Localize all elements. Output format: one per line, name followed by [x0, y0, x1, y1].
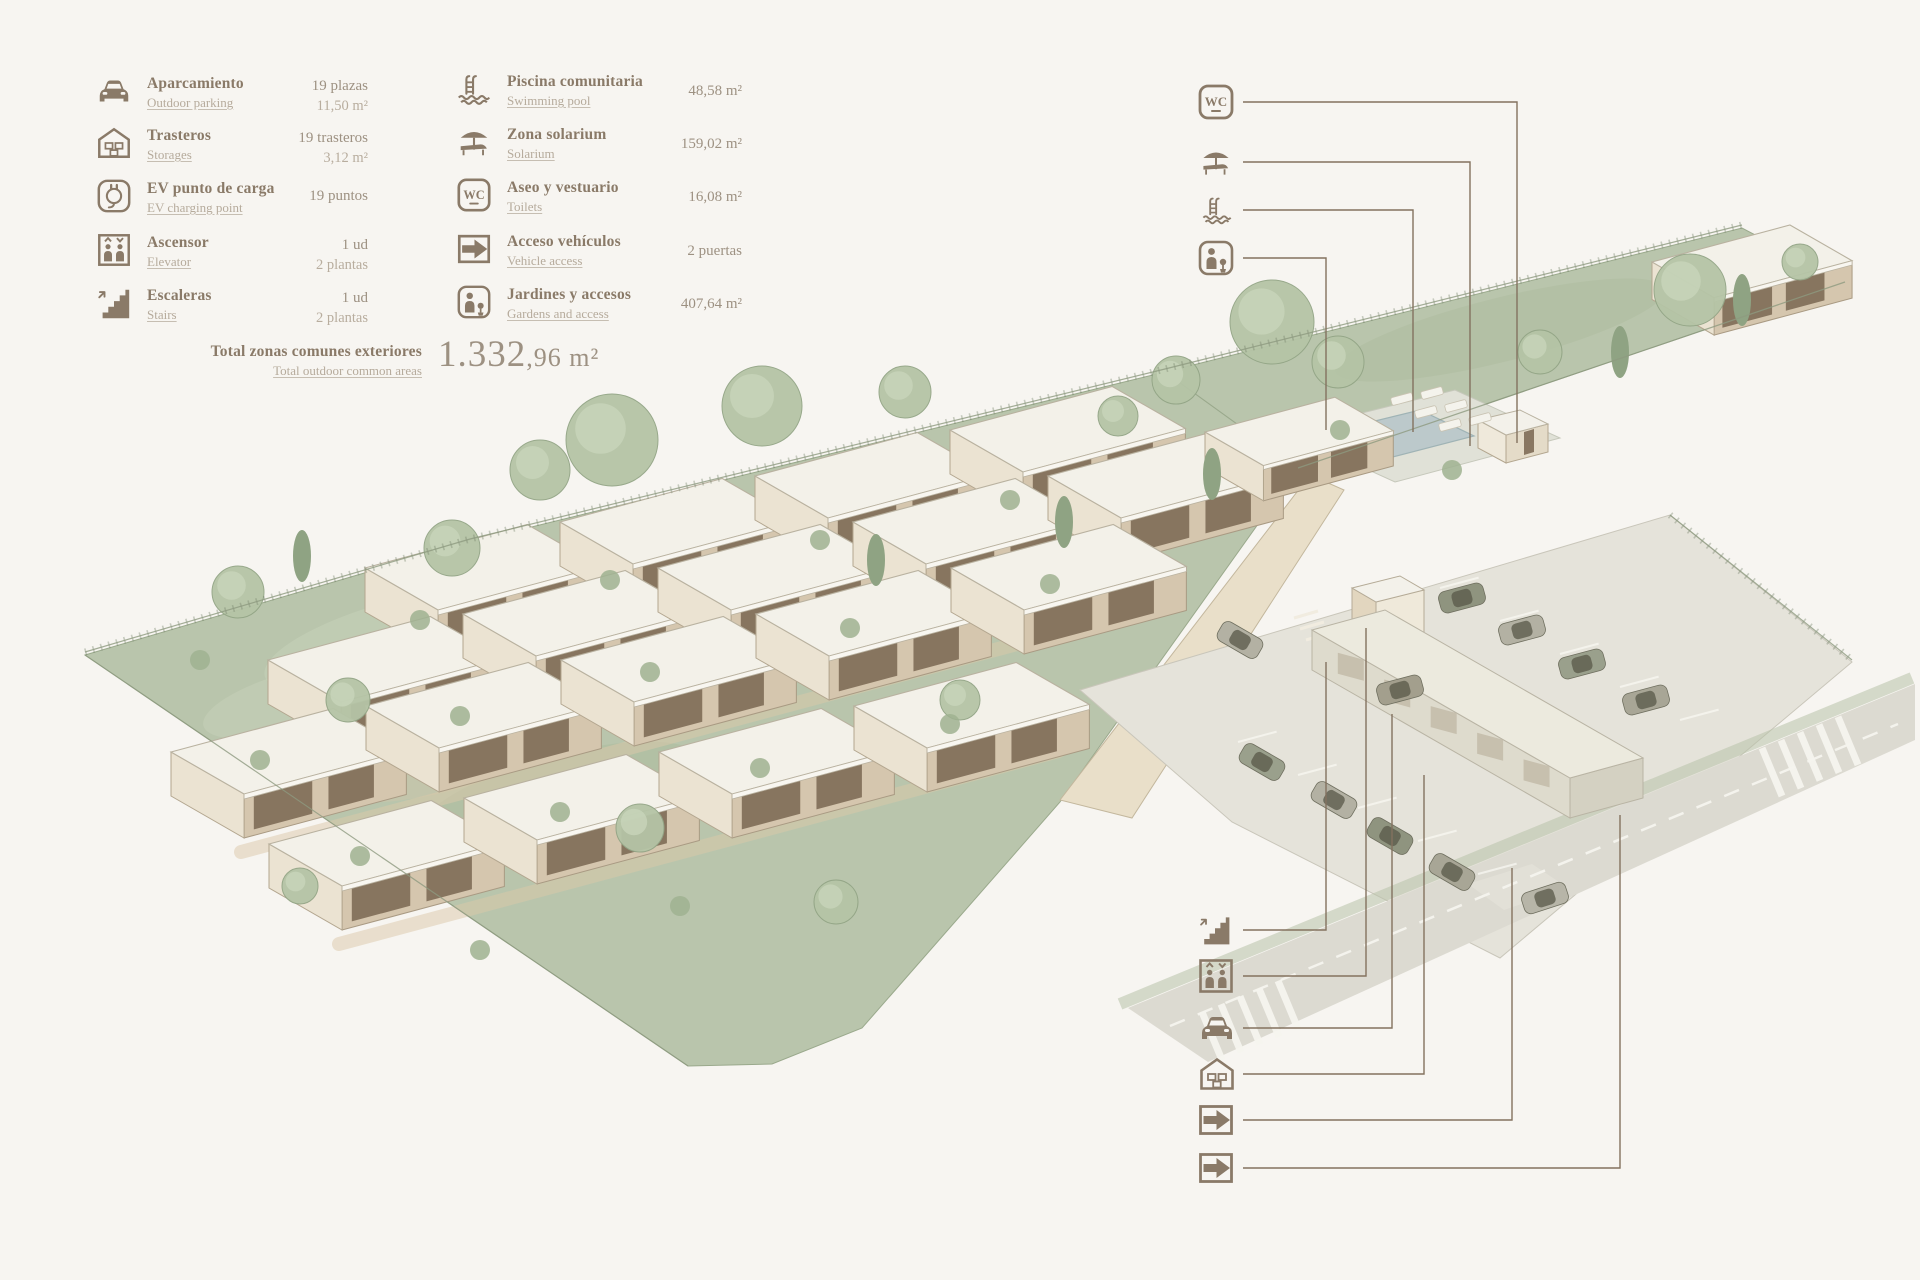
tree	[1782, 244, 1818, 280]
tree	[616, 804, 664, 852]
bush	[750, 758, 770, 778]
legend-label-en: Stairs	[147, 307, 212, 323]
cypress-tree	[1203, 448, 1221, 500]
legend-label-es: Trasteros	[147, 127, 211, 145]
legend-value: 2 puertas	[687, 242, 742, 262]
legend-row-escaleras: Escaleras Stairs 1 ud 2 plantas	[95, 284, 368, 323]
legend-value: 19 puntos	[309, 187, 368, 207]
vehicle-access-icon	[1196, 1100, 1236, 1140]
legend-value: 1 ud 2 plantas	[316, 236, 368, 274]
elevator-icon	[95, 231, 133, 269]
bush	[1040, 574, 1060, 594]
ev-charging-icon	[95, 177, 133, 215]
tree	[814, 880, 858, 924]
stairs-icon	[95, 284, 133, 322]
legend-value: 159,02 m²	[681, 135, 742, 155]
legend-value: 16,08 m²	[688, 188, 742, 208]
tree	[1518, 330, 1562, 374]
legend-label-en: EV charging point	[147, 200, 275, 216]
total-label-es: Total zonas comunes exteriores	[148, 343, 422, 361]
tree	[424, 520, 480, 576]
tree	[212, 566, 264, 618]
legend-label-en: Storages	[147, 147, 211, 163]
legend-label-es: Acceso vehículos	[507, 233, 621, 251]
legend-label-en: Outdoor parking	[147, 95, 244, 111]
tree	[282, 868, 318, 904]
bush	[940, 714, 960, 734]
tree	[1312, 336, 1364, 388]
gardens-icon	[455, 283, 493, 321]
tree	[1152, 356, 1200, 404]
legend-label-es: Aparcamiento	[147, 75, 244, 93]
total-value: 1.332,96 m²	[438, 336, 599, 373]
bush	[250, 750, 270, 770]
cypress-tree	[1055, 496, 1073, 548]
legend-value: 407,64 m²	[681, 295, 742, 315]
tree	[510, 440, 570, 500]
legend-label-es: Piscina comunitaria	[507, 73, 643, 91]
legend-row-trasteros: Trasteros Storages 19 trasteros 3,12 m²	[95, 124, 368, 163]
legend-value: 1 ud 2 plantas	[316, 289, 368, 327]
bush	[1000, 490, 1020, 510]
legend-row-jardines: Jardines y accesos Gardens and access 40…	[455, 283, 742, 322]
legend-label-es: Zona solarium	[507, 126, 607, 144]
tree	[879, 366, 931, 418]
legend-row-piscina: Piscina comunitaria Swimming pool 48,58 …	[455, 70, 742, 109]
solarium-icon	[1198, 144, 1234, 180]
site-plan-page: WC	[0, 0, 1920, 1280]
tree	[1654, 254, 1726, 326]
gardens-icon	[1196, 238, 1236, 278]
legend-row-aseo: Aseo y vestuario Toilets 16,08 m²	[455, 176, 742, 215]
tree	[326, 678, 370, 722]
bush	[1330, 420, 1350, 440]
cypress-tree	[1611, 326, 1629, 378]
bush	[600, 570, 620, 590]
bush	[190, 650, 210, 670]
solarium-icon	[455, 123, 493, 161]
bush	[470, 940, 490, 960]
storage-icon	[1197, 1054, 1237, 1094]
tree	[1230, 280, 1314, 364]
wc-icon	[455, 176, 493, 214]
legend-row-ev: EV punto de carga EV charging point 19 p…	[95, 177, 368, 216]
wc-icon	[1196, 82, 1236, 122]
bush	[410, 610, 430, 630]
legend-label-es: EV punto de carga	[147, 180, 275, 198]
legend-label-en: Toilets	[507, 199, 619, 215]
bush	[810, 530, 830, 550]
tree	[722, 366, 802, 446]
legend-label-en: Gardens and access	[507, 306, 631, 322]
tree	[1098, 396, 1138, 436]
legend-label-es: Ascensor	[147, 234, 209, 252]
vehicle-access-icon	[1196, 1148, 1236, 1188]
total-label-en: Total outdoor common areas	[148, 363, 422, 379]
bush	[640, 662, 660, 682]
legend-value: 19 trasteros 3,12 m²	[298, 129, 368, 167]
legend-value: 19 plazas 11,50 m²	[312, 77, 368, 115]
legend-row-solarium: Zona solarium Solarium 159,02 m²	[455, 123, 742, 162]
vehicle-access-icon	[455, 230, 493, 268]
legend-row-acceso: Acceso vehículos Vehicle access 2 puerta…	[455, 230, 742, 269]
tree	[940, 680, 980, 720]
legend-value: 48,58 m²	[688, 82, 742, 102]
legend-row-aparcamiento: Aparcamiento Outdoor parking 19 plazas 1…	[95, 72, 368, 111]
bush	[450, 706, 470, 726]
legend-label-es: Aseo y vestuario	[507, 179, 619, 197]
pool-icon	[455, 70, 493, 108]
pool-icon	[1200, 193, 1234, 227]
bush	[1442, 460, 1462, 480]
cypress-tree	[293, 530, 311, 582]
bush	[840, 618, 860, 638]
bush	[350, 846, 370, 866]
legend-total: Total zonas comunes exteriores Total out…	[148, 336, 599, 379]
cypress-tree	[867, 534, 885, 586]
bush	[670, 896, 690, 916]
legend-label-en: Elevator	[147, 254, 209, 270]
car-icon	[1197, 1008, 1237, 1048]
legend-label-en: Swimming pool	[507, 93, 643, 109]
car-icon	[95, 72, 133, 110]
tree	[566, 394, 658, 486]
legend-label-es: Jardines y accesos	[507, 286, 631, 304]
elevator-icon	[1196, 956, 1236, 996]
storage-icon	[95, 124, 133, 162]
cypress-tree	[1733, 274, 1751, 326]
legend-label-en: Solarium	[507, 146, 607, 162]
stairs-icon	[1197, 912, 1233, 948]
legend-label-en: Vehicle access	[507, 253, 621, 269]
bush	[550, 802, 570, 822]
legend-row-ascensor: Ascensor Elevator 1 ud 2 plantas	[95, 231, 368, 270]
legend-label-es: Escaleras	[147, 287, 212, 305]
